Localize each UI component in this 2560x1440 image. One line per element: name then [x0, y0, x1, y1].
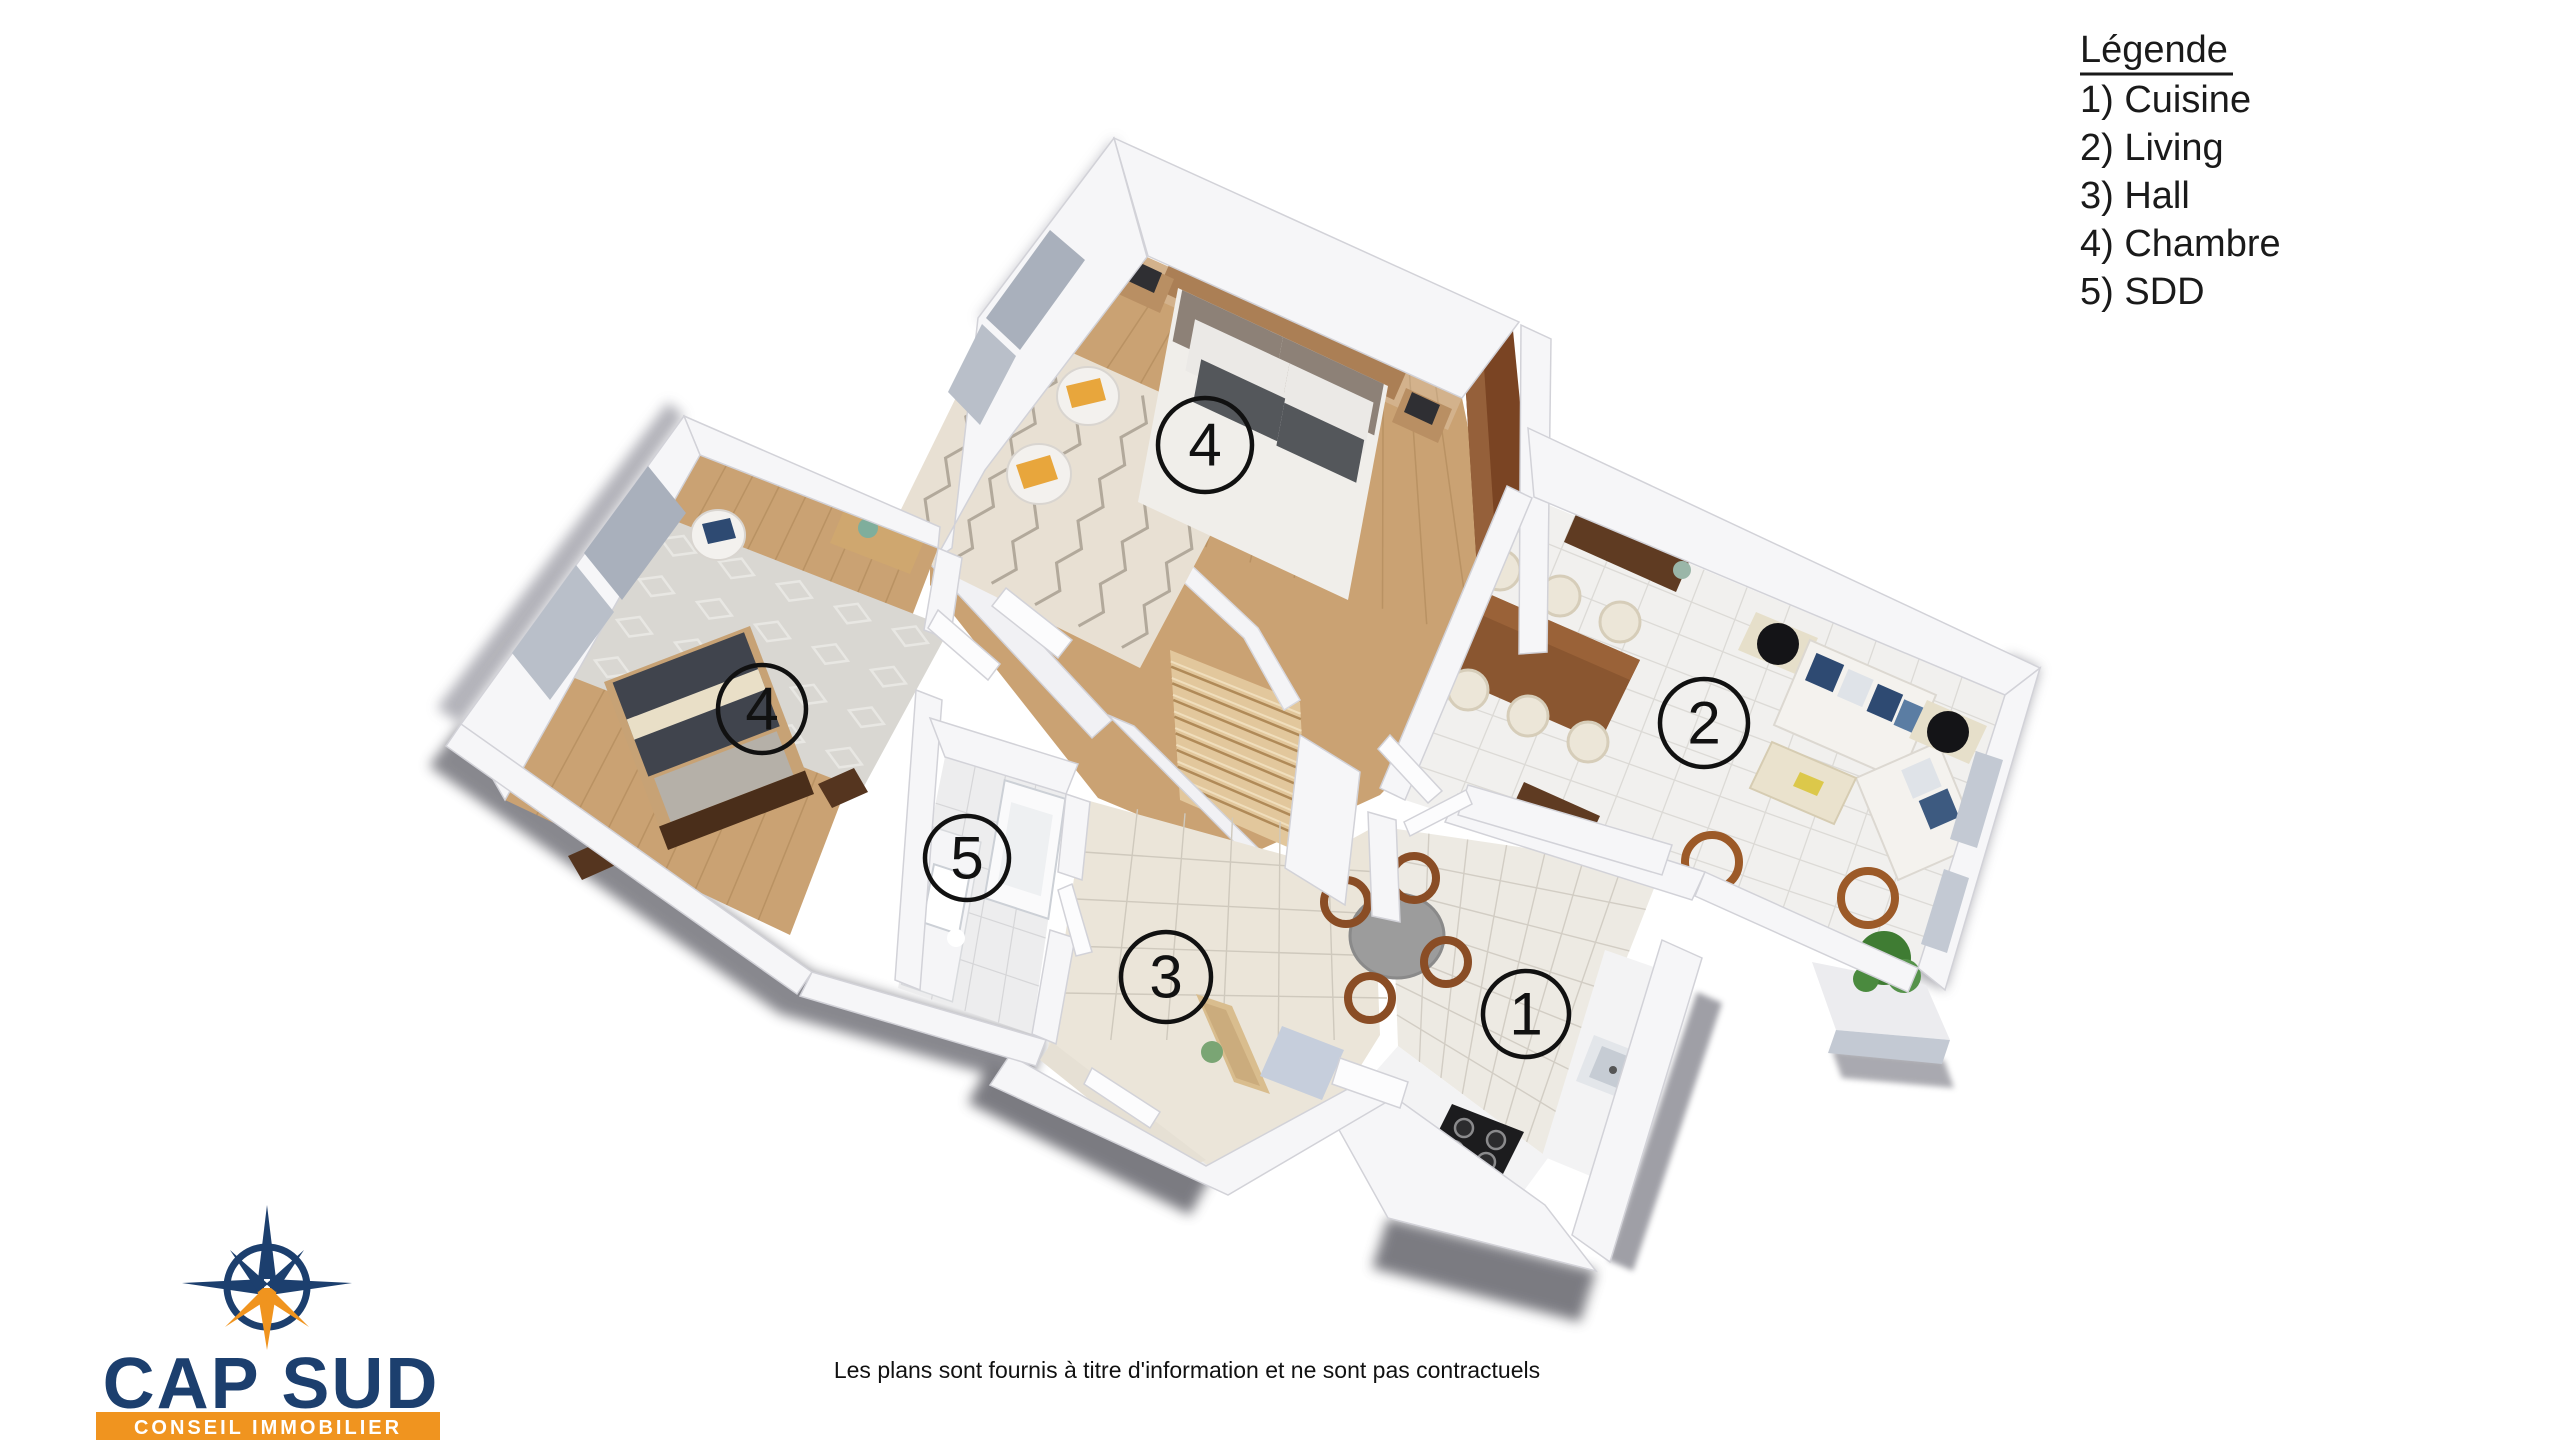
svg-text:5) SDD: 5) SDD	[2080, 271, 2205, 313]
svg-text:3) Hall: 3) Hall	[2080, 175, 2190, 217]
svg-text:Légende: Légende	[2080, 29, 2228, 71]
svg-text:2: 2	[1687, 690, 1720, 757]
svg-text:CONSEIL IMMOBILIER: CONSEIL IMMOBILIER	[134, 1417, 402, 1439]
svg-text:1: 1	[1509, 981, 1542, 1048]
svg-text:4: 4	[1188, 412, 1221, 479]
svg-text:3: 3	[1149, 944, 1182, 1011]
svg-text:1) Cuisine: 1) Cuisine	[2080, 79, 2251, 121]
svg-text:Les plans sont fournis à titre: Les plans sont fournis à titre d'informa…	[834, 1357, 1540, 1383]
svg-text:2) Living: 2) Living	[2080, 127, 2224, 169]
svg-text:4) Chambre: 4) Chambre	[2080, 223, 2281, 265]
svg-text:5: 5	[950, 825, 983, 892]
svg-text:4: 4	[745, 676, 778, 743]
